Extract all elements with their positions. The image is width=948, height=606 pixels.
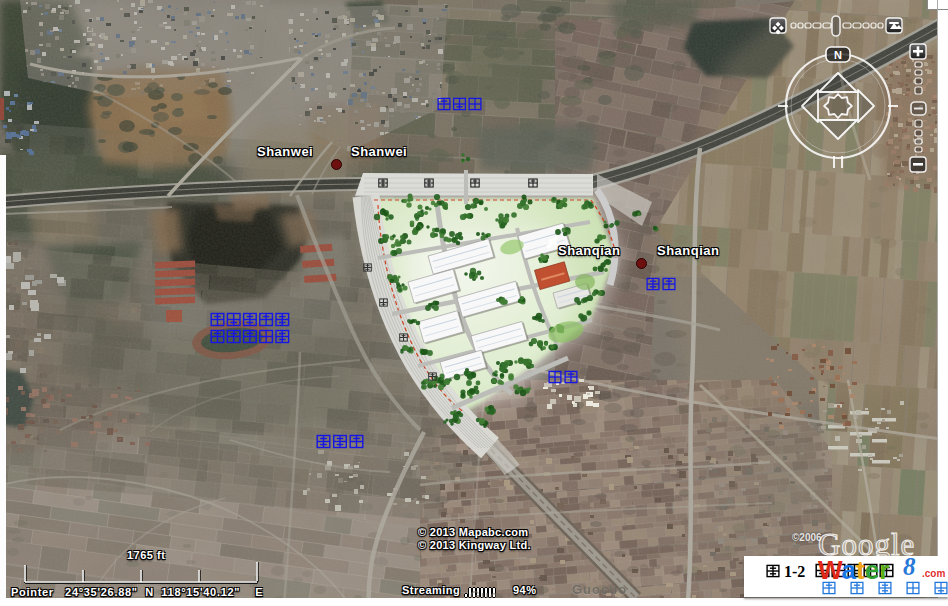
svg-text:1-2: 1-2: [784, 563, 805, 580]
svg-text:N: N: [834, 49, 842, 61]
